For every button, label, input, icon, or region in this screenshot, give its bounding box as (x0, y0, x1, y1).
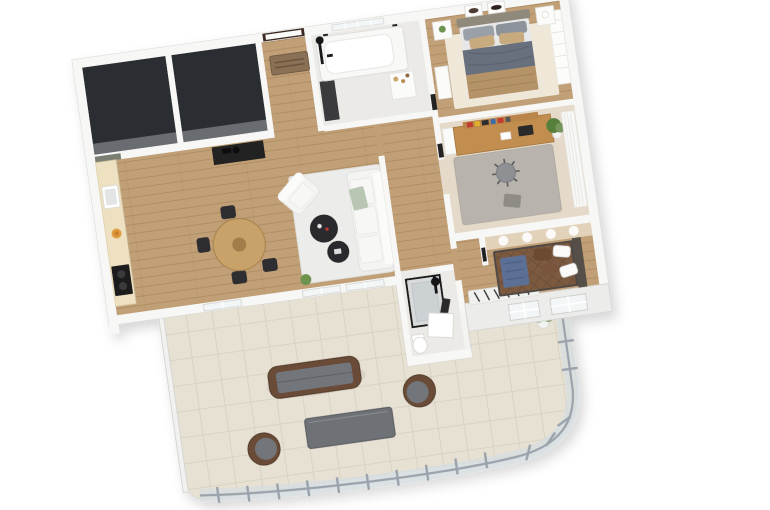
floor-plan-render (0, 0, 770, 510)
office-rug-spot (503, 193, 521, 208)
nightstand-left (432, 20, 452, 40)
bath-vanity (389, 71, 416, 100)
bed2-pillow-brown-1 (534, 248, 552, 260)
wall-art-1 (464, 4, 482, 17)
dining-chair (196, 237, 211, 254)
floor-plan-svg (0, 0, 770, 510)
dining-chair (220, 205, 237, 220)
dining-chair (231, 270, 248, 285)
nightstand-right (535, 6, 555, 26)
bed2-pillow-white-1 (553, 245, 571, 257)
dining-chair (262, 257, 279, 272)
wall-art-2 (487, 1, 505, 14)
white-door-panel (428, 313, 454, 338)
laptop (518, 125, 534, 137)
scene (72, 0, 632, 510)
bed2-blue-blanket (500, 255, 530, 288)
kitchen-sink (101, 185, 120, 209)
desk-papers (500, 132, 511, 140)
master-bed (456, 9, 541, 100)
